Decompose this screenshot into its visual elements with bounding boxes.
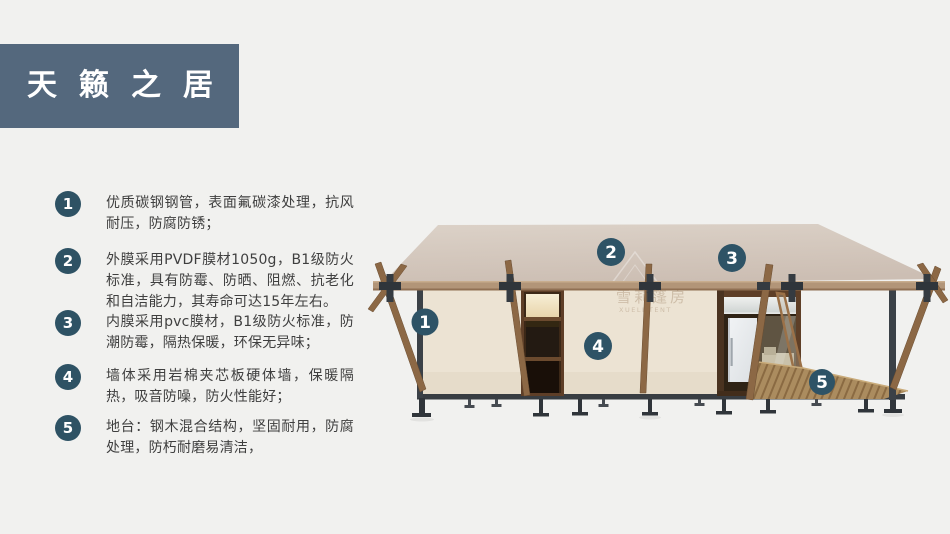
svg-text:5: 5 bbox=[816, 373, 828, 393]
feature-text: 内膜采用pvc膜材，B1级防火标准，防潮防霉，隔热保暖，环保无异味； bbox=[106, 312, 354, 354]
feature-item-3: 3 内膜采用pvc膜材，B1级防火标准，防潮防霉，隔热保暖，环保无异味； bbox=[55, 310, 354, 354]
feature-text: 优质碳钢钢管，表面氟碳漆处理，抗风耐压，防腐防锈； bbox=[106, 193, 354, 235]
feature-number-badge: 3 bbox=[55, 310, 81, 336]
tent-svg: 雪莉篷房 XUELI TENT 1 2 3 4 bbox=[365, 208, 950, 436]
callout-badge-4: 4 bbox=[584, 332, 612, 360]
feature-number-badge: 5 bbox=[55, 415, 81, 441]
feature-number-badge: 1 bbox=[55, 191, 81, 217]
tent-render: 雪莉篷房 XUELI TENT 1 2 3 4 bbox=[365, 208, 950, 436]
watermark-subtext: XUELI TENT bbox=[619, 306, 672, 314]
feature-item-5: 5 地台：钢木混合结构，坚固耐用，防腐处理，防朽耐磨易清洁， bbox=[55, 415, 354, 459]
feature-number-badge: 4 bbox=[55, 364, 81, 390]
callout-badge-5: 5 bbox=[809, 369, 835, 395]
svg-text:4: 4 bbox=[592, 337, 604, 357]
feature-text: 墙体采用岩棉夹芯板硬体墙，保暖隔热，吸音防噪，防火性能好； bbox=[106, 366, 354, 408]
feature-number-badge: 2 bbox=[55, 248, 81, 274]
callout-badge-3: 3 bbox=[718, 244, 746, 272]
svg-text:2: 2 bbox=[605, 243, 617, 263]
feature-item-4: 4 墙体采用岩棉夹芯板硬体墙，保暖隔热，吸音防噪，防火性能好； bbox=[55, 364, 354, 408]
callout-badge-1: 1 bbox=[412, 309, 439, 336]
steel-legs bbox=[410, 398, 904, 422]
svg-text:1: 1 bbox=[419, 313, 431, 333]
door-handle bbox=[731, 338, 733, 366]
door-lower-panel bbox=[526, 361, 559, 393]
feature-item-2: 2 外膜采用PVDF膜材1050g，B1级防火标准，具有防霉、防晒、阻燃、抗老化… bbox=[55, 248, 354, 313]
feature-list: 1 优质碳钢钢管，表面氟碳漆处理，抗风耐压，防腐防锈； 2 外膜采用PVDF膜材… bbox=[0, 0, 380, 534]
svg-text:3: 3 bbox=[726, 249, 738, 269]
callout-badge-2: 2 bbox=[597, 238, 625, 266]
slide: 天籁之居 1 优质碳钢钢管，表面氟碳漆处理，抗风耐压，防腐防锈； 2 外膜采用P… bbox=[0, 0, 950, 534]
roof-canopy bbox=[380, 224, 935, 286]
feature-text: 外膜采用PVDF膜材1050g，B1级防火标准，具有防霉、防晒、阻燃、抗老化和自… bbox=[106, 250, 354, 313]
door-top-window bbox=[526, 294, 559, 317]
feature-text: 地台：钢木混合结构，坚固耐用，防腐处理，防朽耐磨易清洁， bbox=[106, 417, 354, 459]
watermark-text: 雪莉篷房 bbox=[616, 288, 688, 306]
feature-item-1: 1 优质碳钢钢管，表面氟碳漆处理，抗风耐压，防腐防锈； bbox=[55, 191, 354, 235]
